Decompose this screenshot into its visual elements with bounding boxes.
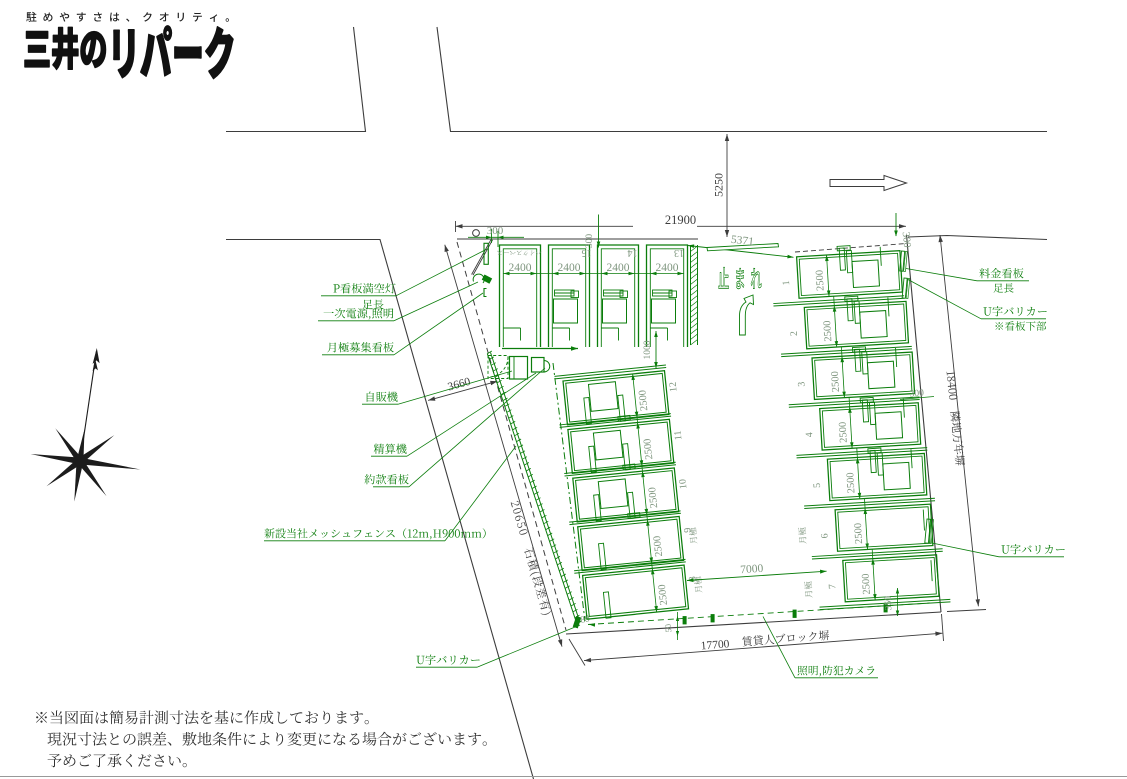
svg-text:2500: 2500 [637,389,650,411]
svg-text:14: 14 [628,247,638,258]
svg-text:2400: 2400 [509,262,532,274]
svg-text:1000: 1000 [643,340,653,359]
svg-text:6: 6 [819,533,830,539]
svg-text:2500: 2500 [845,472,857,494]
svg-text:12: 12 [668,381,680,392]
svg-text:2500: 2500 [830,371,842,393]
svg-text:3: 3 [796,381,807,387]
svg-text:2: 2 [789,331,800,337]
svg-text:2400: 2400 [558,262,581,274]
svg-text:2400: 2400 [607,262,630,274]
svg-text:7: 7 [827,584,838,590]
svg-text:2400: 2400 [656,262,679,274]
svg-text:350: 350 [884,595,895,610]
svg-text:2500: 2500 [822,320,834,342]
svg-text:2500: 2500 [861,573,873,595]
svg-text:2500: 2500 [652,535,665,557]
svg-text:300: 300 [900,231,913,248]
svg-text:11: 11 [673,430,685,441]
svg-text:50: 50 [663,624,674,633]
svg-text:10: 10 [677,479,689,490]
svg-text:2500: 2500 [838,421,850,443]
svg-text:300: 300 [585,234,595,249]
svg-text:13: 13 [674,247,684,258]
svg-text:17700: 17700 [700,638,730,652]
svg-text:2500: 2500 [814,270,826,292]
svg-text:1: 1 [781,280,792,286]
svg-text:7000: 7000 [740,563,764,577]
svg-text:2500: 2500 [647,487,660,509]
svg-text:21900: 21900 [665,213,696,227]
svg-text:5: 5 [812,483,823,489]
svg-text:2500: 2500 [853,523,865,545]
svg-text:5250: 5250 [712,173,726,197]
svg-text:300: 300 [487,225,504,237]
svg-text:2500: 2500 [657,584,670,606]
svg-text:4: 4 [804,432,815,438]
svg-text:2500: 2500 [642,438,655,460]
